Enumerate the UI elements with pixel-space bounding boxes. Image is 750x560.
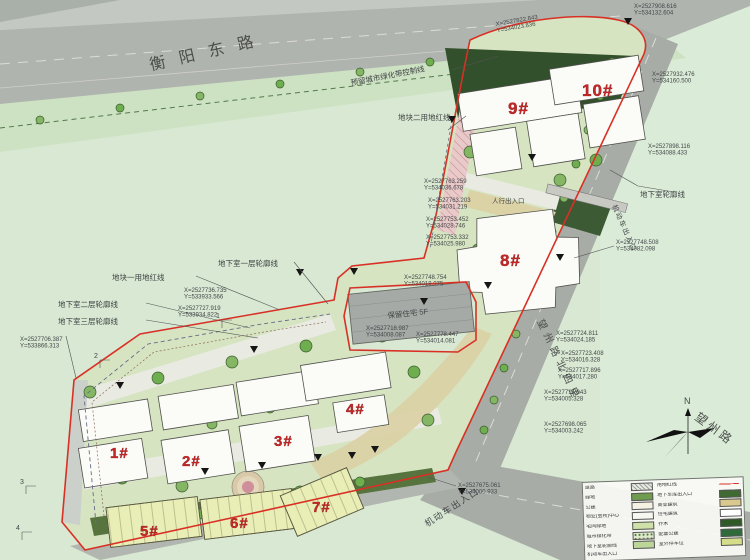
legend-label: 城市绿化带 [584,533,630,540]
legend-label: 商业建筑 [655,501,717,509]
legend-label: 地下车库出入口 [655,491,717,499]
building-label-8: 8# [500,251,521,270]
legend-label: 道路 [583,484,629,491]
tree-icon [226,356,238,368]
coordinate-label: X=2527908.616Y=534132.604 [634,4,677,17]
coordinate-label: X=2527675.061Y=534000.933 [458,483,501,496]
coordinate-label: X=2527763.203Y=534031.219 [428,198,471,211]
tree-icon [355,477,365,487]
coordinate-label: X=2527748.754Y=534018.075 [404,275,447,288]
legend-label: 住宅建筑 [656,510,718,518]
legend-label: 用地红线 [655,481,717,489]
legend-swatch [633,551,653,558]
coordinate-label: X=2527723.408Y=534016.328 [561,351,604,364]
tree-icon [152,372,164,384]
legend-label: 配套公建 [656,530,718,538]
legend-label: 地下室轮廓线 [585,543,631,550]
legend-swatch [632,531,654,540]
basement-3-label: 地下室三层轮廓线 [58,316,118,326]
coordinate-label: X=2527718.987Y=534008.087 [366,326,409,339]
svg-text:1: 1 [216,313,220,320]
tree-icon [36,116,44,124]
legend-swatch [721,538,743,547]
legend-label: 乔木 [656,520,718,528]
tree-icon [276,80,284,88]
basement-2-label: 地下室二层轮廓线 [58,299,118,309]
tree-icon [408,366,420,378]
building-label-2: 2# [182,453,201,470]
legend-swatch [719,489,741,498]
legend-swatch [720,508,742,517]
legend-label: 公建 [583,504,629,511]
coordinate-label: X=2527727.919Y=533934.822 [178,306,221,319]
tree-icon [426,58,434,66]
building-label-10: 10# [582,81,613,100]
basement-1-label: 地下室一层轮廓线 [218,258,278,268]
tree-icon [554,174,566,186]
legend-swatch [632,511,654,520]
tree-icon [300,340,312,352]
legend-label: 宅间绿地 [584,523,630,530]
coordinate-label: X=2527736.735Y=533933.566 [184,288,227,301]
building-label-5: 5# [140,523,159,540]
tree-icon [422,414,434,426]
building-label-3: 3# [274,433,293,450]
legend-swatch [719,499,741,508]
coordinate-label: X=2527706.387Y=533866.313 [20,337,63,350]
tree-icon [196,92,204,100]
svg-text:3: 3 [20,479,24,486]
coordinate-label: X=2527717.896Y=534017.280 [558,368,601,381]
building-label-4: 4# [346,401,365,418]
building-label-7: 7# [312,499,331,516]
legend-table: 道路用地红线绿地地下车库出入口公建商业建筑物业(会所)中心住宅建筑宅间绿地乔木城… [582,476,747,560]
coordinate-label: X=2527763.259Y=534036.678 [424,179,467,192]
legend-swatch [721,547,741,554]
building-label-6: 6# [230,515,249,532]
legend-label: 绿地 [583,494,629,501]
plot1-redline-label: 地块一用地红线 [112,272,165,282]
coordinate-label: X=2527753.452Y=534028.746 [426,217,469,230]
tree-icon [500,364,508,372]
coordinate-label: X=2527898.116Y=534088.433 [648,144,691,157]
coordinate-label: X=2527748.508Y=534082.098 [616,240,659,253]
svg-text:2: 2 [94,353,98,360]
legend-swatch [631,482,653,491]
building-label-1: 1# [110,445,129,462]
svg-text:4: 4 [16,525,20,532]
building-label-9: 9# [508,99,529,118]
coordinate-label: X=2527715.943Y=534005.328 [544,390,587,403]
coordinate-label: X=2527932.476Y=534160.500 [652,72,695,85]
legend-label: 物业(会所)中心 [584,514,630,521]
tree-icon [356,68,364,76]
tree-icon [572,160,580,168]
site-plan-drawing: 衡阳东路 望州路北四里 望州路 预留城市绿化带控制线 地块二用地红线 地块一用地… [0,0,750,560]
coordinate-label: X=2527778.447Y=534014.081 [416,332,459,345]
legend-label [657,551,719,553]
site-plan-canvas: 衡阳东路 望州路北四里 望州路 预留城市绿化带控制线 地块二用地红线 地块一用地… [0,0,750,560]
tree-icon [490,396,498,404]
basement-outline-label: 地下室轮廓线 [640,189,685,199]
legend-swatch [633,541,655,550]
legend-swatch [631,492,653,501]
tree-icon [480,426,488,434]
legend-swatch [632,521,654,530]
legend-swatch [720,518,742,527]
legend-swatch [631,502,653,511]
ped-entry-label: 人行出入口 [492,196,525,205]
north-label: N [684,396,691,406]
tree-icon [116,104,124,112]
legend-label: 机动车出入口 [585,552,631,559]
plot2-redline-label: 地块二用地红线 [398,112,451,122]
coordinate-label: X=2527698.065Y=534003.242 [544,422,587,435]
legend-swatch [719,480,739,487]
legend-swatch [720,528,742,537]
legend-label: 室外停车位 [657,540,719,548]
coordinate-label: X=2527753.332Y=534025.980 [426,235,469,248]
coordinate-label: X=2527724.811Y=534024.185 [556,331,599,344]
